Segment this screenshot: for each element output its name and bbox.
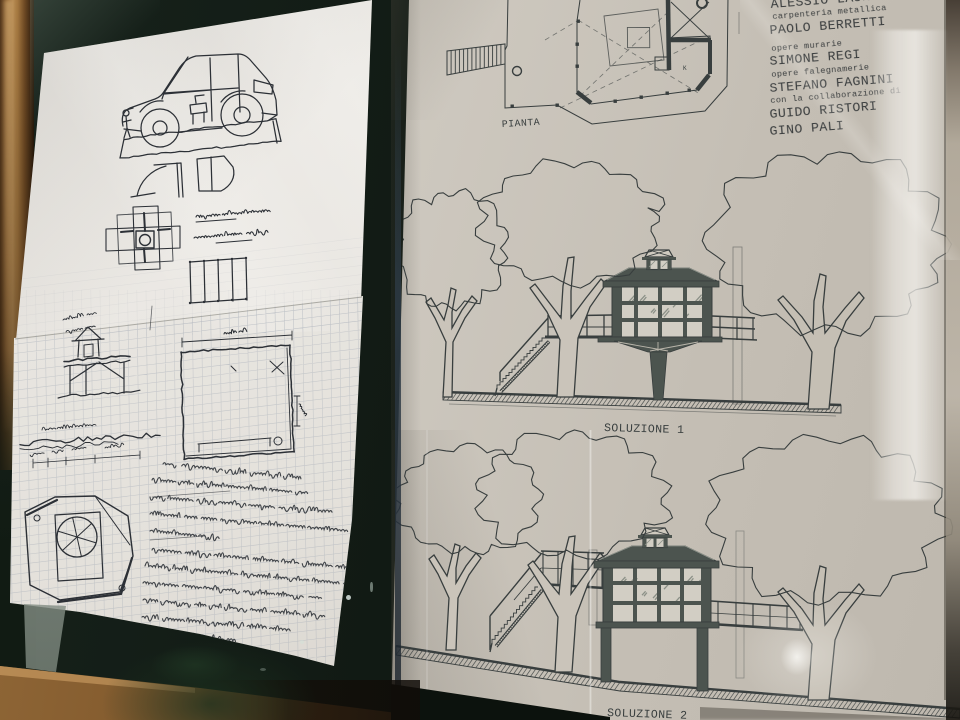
svg-text:SOLUZIONE 1: SOLUZIONE 1 (604, 422, 685, 437)
svg-text:SOLUZIONE 2: SOLUZIONE 2 (607, 707, 688, 720)
svg-text:K: K (683, 65, 687, 72)
svg-text:PIANTA: PIANTA (502, 117, 541, 130)
